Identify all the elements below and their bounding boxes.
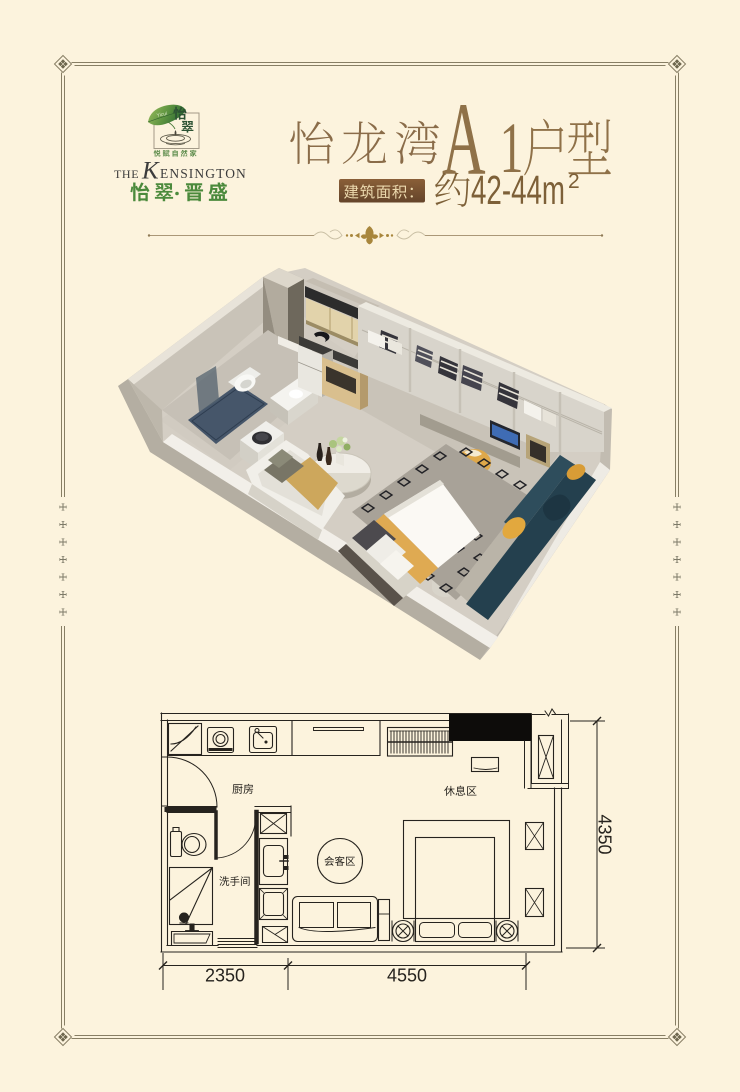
svg-text:ENSINGTON: ENSINGTON	[160, 166, 247, 181]
svg-text:THE: THE	[114, 167, 139, 181]
svg-text:2: 2	[568, 170, 580, 193]
svg-text:2350: 2350	[205, 966, 245, 986]
svg-text:4550: 4550	[387, 966, 427, 986]
svg-text:4350: 4350	[595, 814, 615, 854]
svg-text:42-44m: 42-44m	[471, 167, 565, 213]
svg-text:K: K	[141, 158, 160, 185]
